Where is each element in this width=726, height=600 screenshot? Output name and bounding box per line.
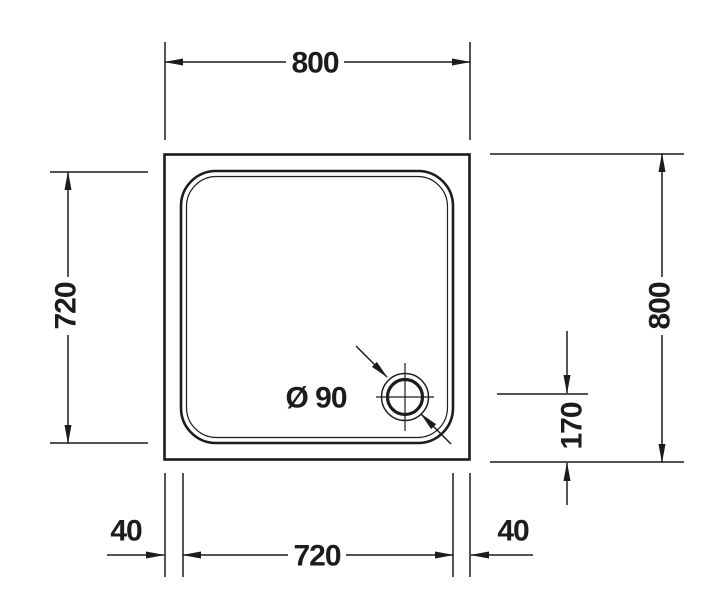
dimension-top-width: 800 bbox=[165, 42, 470, 140]
bottom-right-rim-label: 40 bbox=[497, 515, 529, 548]
top-width-label: 800 bbox=[291, 47, 338, 80]
drain-offset-label: 170 bbox=[556, 402, 589, 449]
drain-diameter-label: Ø 90 bbox=[285, 382, 346, 415]
shower-tray-dimension-drawing: Ø 90 800 720 800 170 bbox=[0, 0, 726, 600]
dimension-drain-offset: 170 bbox=[497, 331, 589, 505]
dimension-bottom-group: 40 720 40 bbox=[107, 473, 533, 577]
drain: Ø 90 bbox=[285, 346, 451, 444]
left-inner-height-label: 720 bbox=[50, 282, 83, 329]
drain-leader-arrow-upper bbox=[356, 346, 387, 377]
right-height-label: 800 bbox=[644, 282, 677, 329]
dimension-left-inner-height: 720 bbox=[49, 172, 148, 443]
bottom-inner-width-label: 720 bbox=[293, 540, 340, 573]
bottom-left-rim-label: 40 bbox=[110, 515, 142, 548]
technical-drawing-canvas: Ø 90 800 720 800 170 bbox=[0, 0, 726, 600]
